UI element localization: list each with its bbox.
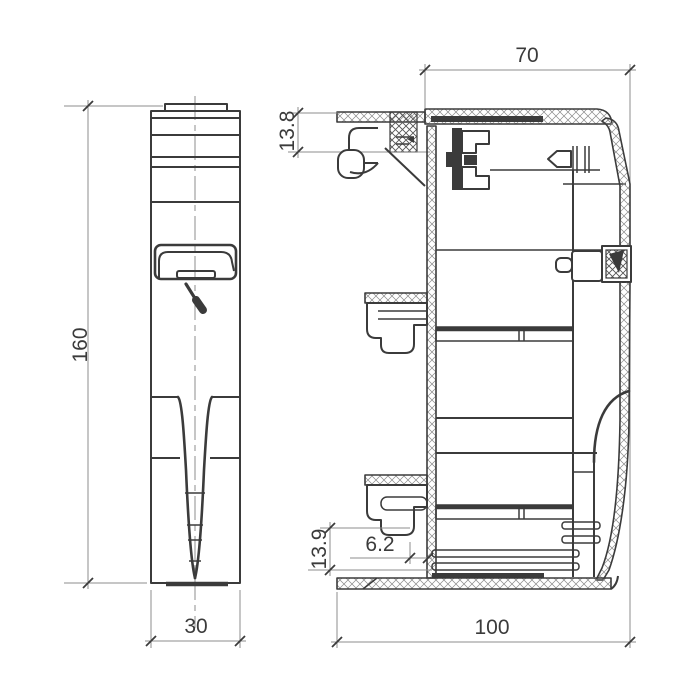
section-right-wall-upper (602, 118, 630, 246)
section-top-connector (446, 128, 489, 190)
section-top-screw (548, 146, 589, 173)
dim-section-bottom-width: 100 (331, 592, 636, 648)
section-top-latch (288, 128, 430, 186)
dim-left-height-value: 160 (69, 327, 92, 362)
left-view-window-tab (177, 271, 215, 278)
section-top-seal-block (390, 112, 417, 152)
section-right-latch (556, 246, 631, 282)
dim-section-top-inset-value: 13.8 (276, 111, 299, 152)
section-top-dark-bar (431, 116, 543, 122)
section-bottom-bars (432, 550, 579, 578)
drawing-svg: 160 30 70 100 (0, 0, 700, 700)
dim-left-height: 160 (64, 100, 163, 589)
section-bottom-latch (365, 475, 427, 535)
left-view (151, 96, 240, 628)
section-shelf-upper (436, 327, 573, 341)
section-left-wall (427, 126, 436, 578)
dim-section-bottom-gap: 6.2 (350, 533, 433, 564)
section-shelf-lower (436, 505, 573, 519)
technical-drawing-canvas: 160 30 70 100 (0, 0, 700, 700)
dim-section-bottom-width-value: 100 (474, 616, 509, 639)
left-view-top-tab (165, 104, 227, 111)
section-right-wall-lower (596, 282, 630, 580)
dim-section-bottom-gap-value: 6.2 (365, 533, 394, 556)
section-middle-latch (365, 293, 427, 353)
section-view (288, 64, 631, 648)
dim-section-top-width-value: 70 (515, 44, 538, 67)
section-bottom-cap (337, 576, 618, 589)
dim-section-top-inset: 13.8 (276, 107, 340, 158)
dim-section-bottom-inset-value: 13.9 (308, 529, 331, 570)
dim-section-top-width: 70 (419, 44, 636, 108)
dim-left-width-value: 30 (184, 615, 207, 638)
